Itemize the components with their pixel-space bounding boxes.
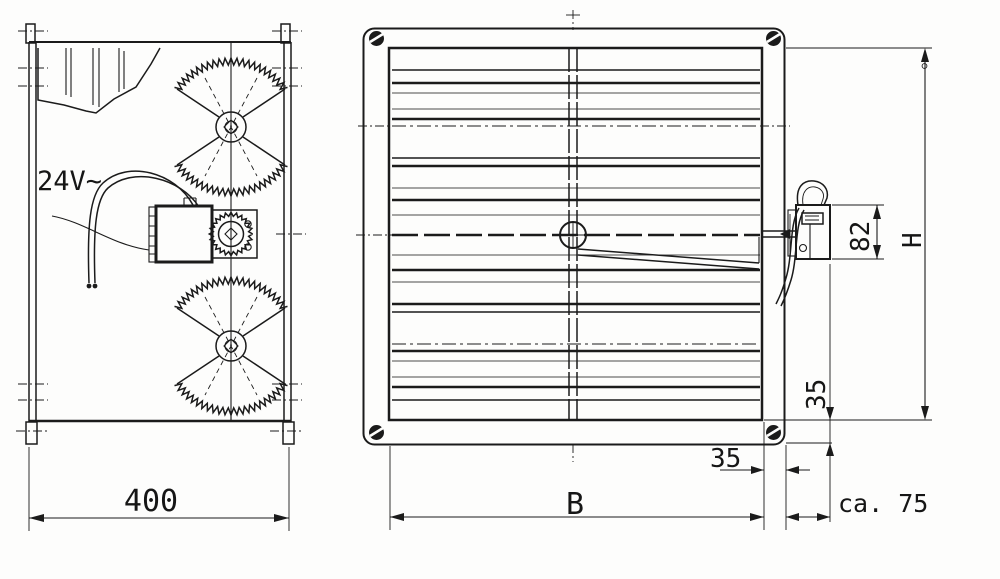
width-dimension-label: B bbox=[566, 487, 584, 522]
side-centerline-ticks bbox=[16, 31, 306, 431]
flange-offset-dimension-label: 35 bbox=[802, 379, 832, 410]
dimension-35-vertical: 35 bbox=[786, 264, 834, 522]
corner-screw-icon bbox=[767, 32, 781, 46]
height-dimension-label: H bbox=[898, 232, 928, 248]
corner-screw-icon bbox=[767, 426, 781, 440]
front-frame-outline bbox=[364, 29, 785, 445]
voltage-label: 24V~ bbox=[37, 166, 102, 197]
dimension-B: B bbox=[390, 446, 764, 530]
front-centerline-ticks bbox=[356, 126, 790, 235]
slat-profile-section bbox=[38, 48, 160, 113]
front-view: H 82 35 35 bbox=[356, 10, 932, 530]
side-view: 24V~ 400 bbox=[16, 24, 306, 531]
frame-profile-dimension-label: 35 bbox=[710, 444, 741, 474]
damper-drawing: 24V~ 400 bbox=[0, 0, 1000, 579]
corner-screw-icon bbox=[370, 32, 384, 46]
center-hub bbox=[560, 222, 586, 248]
actuator-motor bbox=[149, 198, 257, 262]
depth-dimension-label: 400 bbox=[124, 484, 178, 519]
dimension-35-horizontal: 35 bbox=[710, 422, 810, 530]
motor-height-dimension-label: 82 bbox=[846, 221, 876, 252]
dimension-ca-75: ca. 75 bbox=[786, 489, 928, 521]
dimension-400: 400 bbox=[29, 447, 289, 531]
corner-screw-icon bbox=[370, 426, 384, 440]
motor-projection-dimension-label: ca. 75 bbox=[838, 489, 928, 518]
technical-drawing-sheet: 24V~ 400 bbox=[0, 0, 1000, 579]
dimension-82: 82 bbox=[832, 205, 884, 259]
